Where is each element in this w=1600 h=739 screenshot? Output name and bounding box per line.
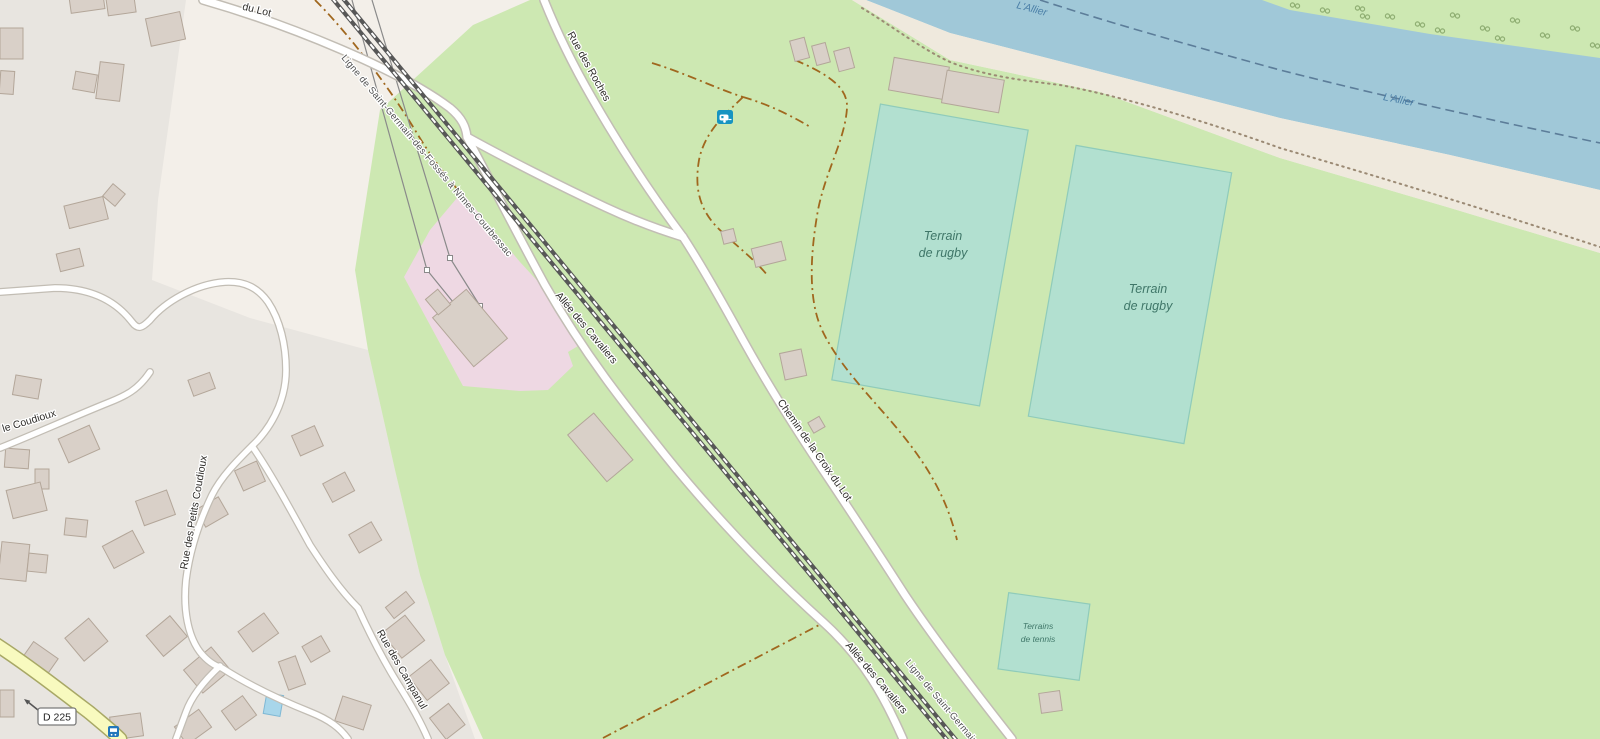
map-canvas[interactable]: du Lot Rue des Roches Ligne de Saint-Ger… xyxy=(0,0,1600,739)
rugby-1-label-line1: Terrain xyxy=(924,229,962,243)
rugby-2-label-line2: de rugby xyxy=(1124,299,1173,313)
tennis-label-line1: Terrains xyxy=(1023,621,1054,631)
rugby-2-label-line1: Terrain xyxy=(1129,282,1167,296)
map-tiles: du Lot Rue des Roches Ligne de Saint-Ger… xyxy=(0,0,1600,739)
caravan-site-icon xyxy=(717,110,733,124)
tennis-label-line2: de tennis xyxy=(1021,634,1056,644)
rugby-1-label-line2: de rugby xyxy=(919,246,968,260)
bus-stop-icon xyxy=(108,726,119,737)
road-ref-text: D 225 xyxy=(43,712,71,724)
road-ref-shield: D 225 xyxy=(38,708,76,725)
